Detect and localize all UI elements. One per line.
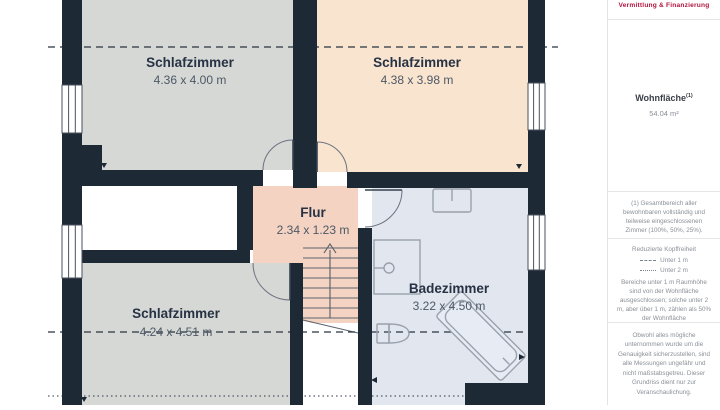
window-left-bottom-icon xyxy=(62,225,82,278)
legend-row-under-2m: Unter 2 m xyxy=(616,267,712,274)
wall-stairwell-left xyxy=(290,263,303,405)
brand-header: Vermittlung & Finanzierung xyxy=(608,0,720,20)
legend-label-under-2m: Unter 2 m xyxy=(660,267,688,274)
label-bedroom-tl-name: Schlafzimmer xyxy=(146,55,235,70)
wall-room-tr-bottom xyxy=(347,172,528,188)
label-bedroom-bl-name: Schlafzimmer xyxy=(132,306,221,321)
wall-center xyxy=(293,0,317,188)
label-bedroom-tr-name: Schlafzimmer xyxy=(373,55,462,70)
floor-plan-sheet: Schlafzimmer 4.36 x 4.00 m Schlafzimmer … xyxy=(0,0,607,405)
wall-bathroom-left xyxy=(358,228,372,405)
label-bathroom-name: Badezimmer xyxy=(409,281,490,296)
wall-left-outer xyxy=(62,0,82,405)
footnote-section: (1) Gesamtbereich aller bewohnbaren voll… xyxy=(608,192,720,239)
disclaimer-section: Obwohl alles mögliche unternommen wurde … xyxy=(608,323,720,405)
wall-hallway-left xyxy=(237,186,253,250)
window-left-top-icon xyxy=(62,85,82,133)
wall-right-outer xyxy=(528,0,545,405)
wall-room-bl-top xyxy=(62,250,250,263)
wall-room-tl-bottom xyxy=(62,170,263,186)
window-right-bottom-icon xyxy=(528,215,545,270)
legend-note: Bereiche unter 1 m Raumhöhe sind von der… xyxy=(616,278,712,324)
brand-tagline: Vermittlung & Finanzierung xyxy=(619,2,710,9)
legend-title: Reduzierte Kopffreiheit xyxy=(616,246,712,253)
stairwell-void xyxy=(303,321,358,405)
dotted-line-icon xyxy=(640,270,656,271)
wall-step xyxy=(82,145,102,171)
label-bedroom-bl-dims: 4.24 x 4.51 m xyxy=(140,325,213,339)
window-right-top-icon xyxy=(528,83,545,130)
label-hallway-dims: 2.34 x 1.23 m xyxy=(277,223,350,237)
living-area-footnote-marker: (1) xyxy=(686,93,693,99)
label-bathroom-dims: 3.22 x 4.50 m xyxy=(413,299,486,313)
label-hallway-name: Flur xyxy=(300,205,326,220)
legend-section: Reduzierte Kopffreiheit Unter 1 m Unter … xyxy=(608,239,720,323)
floor-plan: Schlafzimmer 4.36 x 4.00 m Schlafzimmer … xyxy=(0,0,607,405)
dashed-line-icon xyxy=(640,260,656,261)
living-area-label: Wohnfläche(1) xyxy=(635,93,693,103)
living-area-label-text: Wohnfläche xyxy=(635,93,686,103)
label-bedroom-tr-dims: 4.38 x 3.98 m xyxy=(381,73,454,87)
info-sidebar: Vermittlung & Finanzierung Wohnfläche(1)… xyxy=(607,0,720,405)
wall-bathroom-notch xyxy=(465,383,528,405)
living-area-value: 54.04 m² xyxy=(649,109,679,118)
living-area-section: Wohnfläche(1) 54.04 m² xyxy=(608,20,720,192)
legend-row-under-1m: Unter 1 m xyxy=(616,257,712,264)
legend-label-under-1m: Unter 1 m xyxy=(660,257,688,264)
label-bedroom-tl-dims: 4.36 x 4.00 m xyxy=(154,73,227,87)
